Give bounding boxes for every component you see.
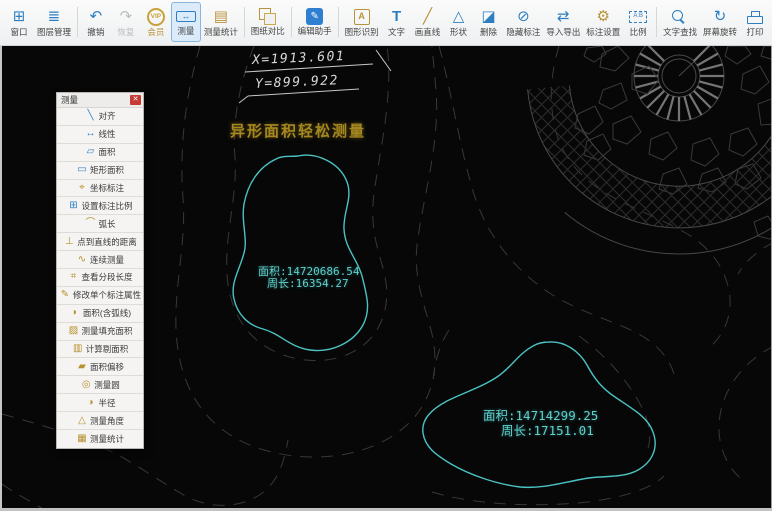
contour-line [719,346,772,480]
panel-item-label: 设置标注比例 [81,200,132,212]
main-toolbar: ⊞ 窗口 ≣ 图层管理 ↶ 撤销 ↷ 恢复 VIP 会员 ↔ 测量 ▤ 测量统计 [0,0,772,46]
toolbar-label: 形状 [450,27,467,38]
vip-badge-icon: VIP [147,8,165,26]
panel-item-deduct-area[interactable]: ▥ 计算剔面积 [57,341,143,359]
contour-line [176,46,437,457]
toolbar-label: 屏幕旋转 [703,27,737,38]
contour-line [434,330,449,376]
line-icon: ╱ [423,7,432,27]
panel-item-label: 面积(含弧线) [83,307,131,319]
toolbar-separator [244,7,245,37]
coordinate-icon: ⌖ [76,182,88,194]
toolbar-label: 隐藏标注 [506,27,540,38]
panel-item-label: 矩形面积 [90,164,124,176]
panel-item-measure-angle[interactable]: △ 测量角度 [57,412,143,430]
close-icon[interactable]: ✕ [130,95,141,105]
toolbar-button-scale[interactable]: A:B 比例 [623,2,653,42]
shape-recognition-icon: A [354,9,370,25]
statistics-icon: ▤ [214,7,228,27]
fill-area-icon: ▨ [67,325,79,337]
toolbar-button-window[interactable]: ⊞ 窗口 [4,2,34,42]
toolbar-label: 打印 [746,27,763,38]
toolbar-label: 测量统计 [204,27,238,38]
toolbar-label: 窗口 [10,27,27,38]
panel-item-coordinate-annotation[interactable]: ⌖ 坐标标注 [57,180,143,198]
linear-dimension-icon: ↔ [84,128,96,140]
panel-item-label: 对齐 [98,110,115,122]
align-dimension-icon: ╲ [84,110,96,122]
rotate-icon: ↻ [714,7,727,27]
toolbar-label: 撤销 [87,27,104,38]
panel-item-align[interactable]: ╲ 对齐 [57,108,143,126]
toolbar-label: 比例 [630,27,647,38]
measure-panel-title: 测量 [61,94,130,106]
pencil-icon: ✎ [59,289,71,301]
deduct-area-icon: ▥ [72,343,84,355]
undo-icon: ↶ [90,7,103,27]
measure-panel: 测量 ✕ ╲ 对齐 ↔ 线性 ▱ 面积 ▭ 矩形面积 ⌖ 坐标标注 ⊞ 设置标注… [56,92,144,449]
curved-area-icon: ◗ [69,307,81,319]
panel-item-label: 弧长 [98,218,115,230]
toolbar-button-import-export[interactable]: ⇄ 导入导出 [543,2,583,42]
panel-item-continuous-measure[interactable]: ∿ 连续测量 [57,251,143,269]
contour-line [738,242,772,274]
toolbar-button-screen-rotate[interactable]: ↻ 屏幕旋转 [700,2,740,42]
toolbar-button-measure[interactable]: ↔ 测量 [171,2,201,42]
toolbar-button-text-search[interactable]: 文字查找 [660,2,700,42]
panel-item-edit-annotation[interactable]: ✎ 修改单个标注属性 [57,287,143,305]
rectangle-area-icon: ▭ [76,164,88,176]
panel-item-segment-length[interactable]: ⌗ 查看分段长度 [57,269,143,287]
toolbar-button-text[interactable]: T 文字 [382,2,412,42]
toolbar-separator [656,7,657,37]
toolbar-label: 画直线 [415,27,441,38]
panel-item-set-scale[interactable]: ⊞ 设置标注比例 [57,197,143,215]
toolbar-label: 删除 [480,27,497,38]
panel-item-label: 测量统计 [90,433,124,445]
contour-line [432,476,664,505]
toolbar-label: 标注设置 [586,27,620,38]
printer-icon [747,16,763,24]
layers-icon: ≣ [48,7,61,27]
eye-slash-icon: ⊘ [517,7,530,27]
circle-icon: ◎ [80,379,92,391]
panel-item-point-to-line[interactable]: ⊥ 点到直线的距离 [57,233,143,251]
panel-item-measure-statistics[interactable]: ▦ 测量统计 [57,430,143,448]
panel-item-radius[interactable]: ◑ 半径 [57,394,143,412]
toolbar-separator [291,7,292,37]
toolbar-label: 图层管理 [37,27,71,38]
toolbar-button-print[interactable]: 打印 [740,2,770,42]
toolbar-button-delete[interactable]: ◪ 删除 [473,2,503,42]
headline-text: 异形面积轻松测量 [230,120,366,141]
edit-assistant-icon: ✎ [306,8,323,25]
panel-item-label: 查看分段长度 [81,271,132,283]
panel-item-label: 连续测量 [90,254,124,266]
toolbar-button-layer-manager[interactable]: ≣ 图层管理 [34,2,74,42]
panel-item-arc-length[interactable]: ⌒ 弧长 [57,215,143,233]
toolbar-separator [338,7,339,37]
arc-icon: ⌒ [84,218,96,230]
text-tool-icon: T [392,7,401,27]
panel-item-area-with-arcs[interactable]: ◗ 面积(含弧线) [57,305,143,323]
panel-item-label: 半径 [98,397,115,409]
shape2-perimeter-label: 周长:17151.01 [501,420,594,439]
panel-item-rect-area[interactable]: ▭ 矩形面积 [57,162,143,180]
eraser-icon: ◪ [481,7,495,27]
angle-icon: △ [76,415,88,427]
segments-icon: ⌗ [67,271,79,283]
toolbar-label: 恢复 [117,27,134,38]
panel-item-label: 面积偏移 [90,361,124,373]
panel-item-area-offset[interactable]: ▰ 面积偏移 [57,358,143,376]
panel-item-label: 测量填充面积 [81,325,132,337]
toolbar-label: 导入导出 [546,27,580,38]
statistics-table-icon: ▦ [76,433,88,445]
shape1-perimeter-label: 周长:16354.27 [267,275,349,291]
contour-line [227,46,389,361]
toolbar-label: 图纸对比 [251,26,285,37]
toolbar-label: 测量 [177,26,194,37]
import-export-icon: ⇄ [557,7,570,27]
toolbar-button-shape-recognition[interactable]: A 图形识别 [342,2,382,42]
scale-settings-icon: ⊞ [67,200,79,212]
panel-item-area[interactable]: ▱ 面积 [57,144,143,162]
toolbar-button-vip[interactable]: VIP 会员 [141,2,171,42]
toolbar-button-hide-annotations[interactable]: ⊘ 隐藏标注 [503,2,543,42]
panel-item-label: 点到直线的距离 [77,236,137,248]
toolbar-button-draw-line[interactable]: ╱ 画直线 [412,2,444,42]
search-icon [672,10,684,22]
toolbar-label: 图形识别 [345,27,379,38]
offset-icon: ▰ [76,361,88,373]
toolbar-button-undo[interactable]: ↶ 撤销 [81,2,111,42]
panel-item-label: 计算剔面积 [86,343,129,355]
shapes-icon: △ [453,7,465,27]
toolbar-button-redo: ↷ 恢复 [111,2,141,42]
panel-item-label: 坐标标注 [90,182,124,194]
toolbar-label: 编辑助手 [298,26,332,37]
ruler-icon: ↔ [176,11,196,22]
gear-pencil-icon: ⚙ [597,7,610,27]
perpendicular-icon: ⊥ [63,236,75,248]
scale-ratio-icon: A:B [629,11,647,23]
toolbar-button-drawing-compare[interactable]: 图纸对比 [248,2,288,42]
rosette-pattern [528,46,772,254]
redo-icon: ↷ [120,7,133,27]
toolbar-button-shapes[interactable]: △ 形状 [443,2,473,42]
toolbar-label: 文字查找 [663,27,697,38]
panel-item-label: 测量圆 [94,379,120,391]
area-icon: ▱ [84,146,96,158]
window-icon: ⊞ [13,7,26,27]
toolbar-button-edit-assistant[interactable]: ✎ 编辑助手 [295,2,335,42]
contour-line [2,414,288,505]
compare-sheets-icon [259,8,276,25]
panel-item-fill-area[interactable]: ▨ 测量填充面积 [57,323,143,341]
panel-item-label: 修改单个标注属性 [73,289,141,301]
panel-item-linear[interactable]: ↔ 线性 [57,126,143,144]
measure-panel-titlebar[interactable]: 测量 ✕ [57,93,143,108]
panel-item-label: 测量角度 [90,415,124,427]
radius-icon: ◑ [84,397,96,409]
contour-line [2,484,48,508]
measured-shape-1[interactable] [233,155,367,350]
toolbar-label: 会员 [147,27,164,38]
panel-item-label: 线性 [98,128,115,140]
app-window: ⊞ 窗口 ≣ 图层管理 ↶ 撤销 ↷ 恢复 VIP 会员 ↔ 测量 ▤ 测量统计 [0,0,772,511]
panel-item-label: 面积 [98,146,115,158]
toolbar-button-annotation-settings[interactable]: ⚙ 标注设置 [583,2,623,42]
panel-item-measure-circle[interactable]: ◎ 测量圆 [57,376,143,394]
toolbar-button-measure-stats[interactable]: ▤ 测量统计 [201,2,241,42]
toolbar-separator [77,7,78,37]
polyline-icon: ∿ [76,254,88,266]
toolbar-label: 文字 [388,27,405,38]
